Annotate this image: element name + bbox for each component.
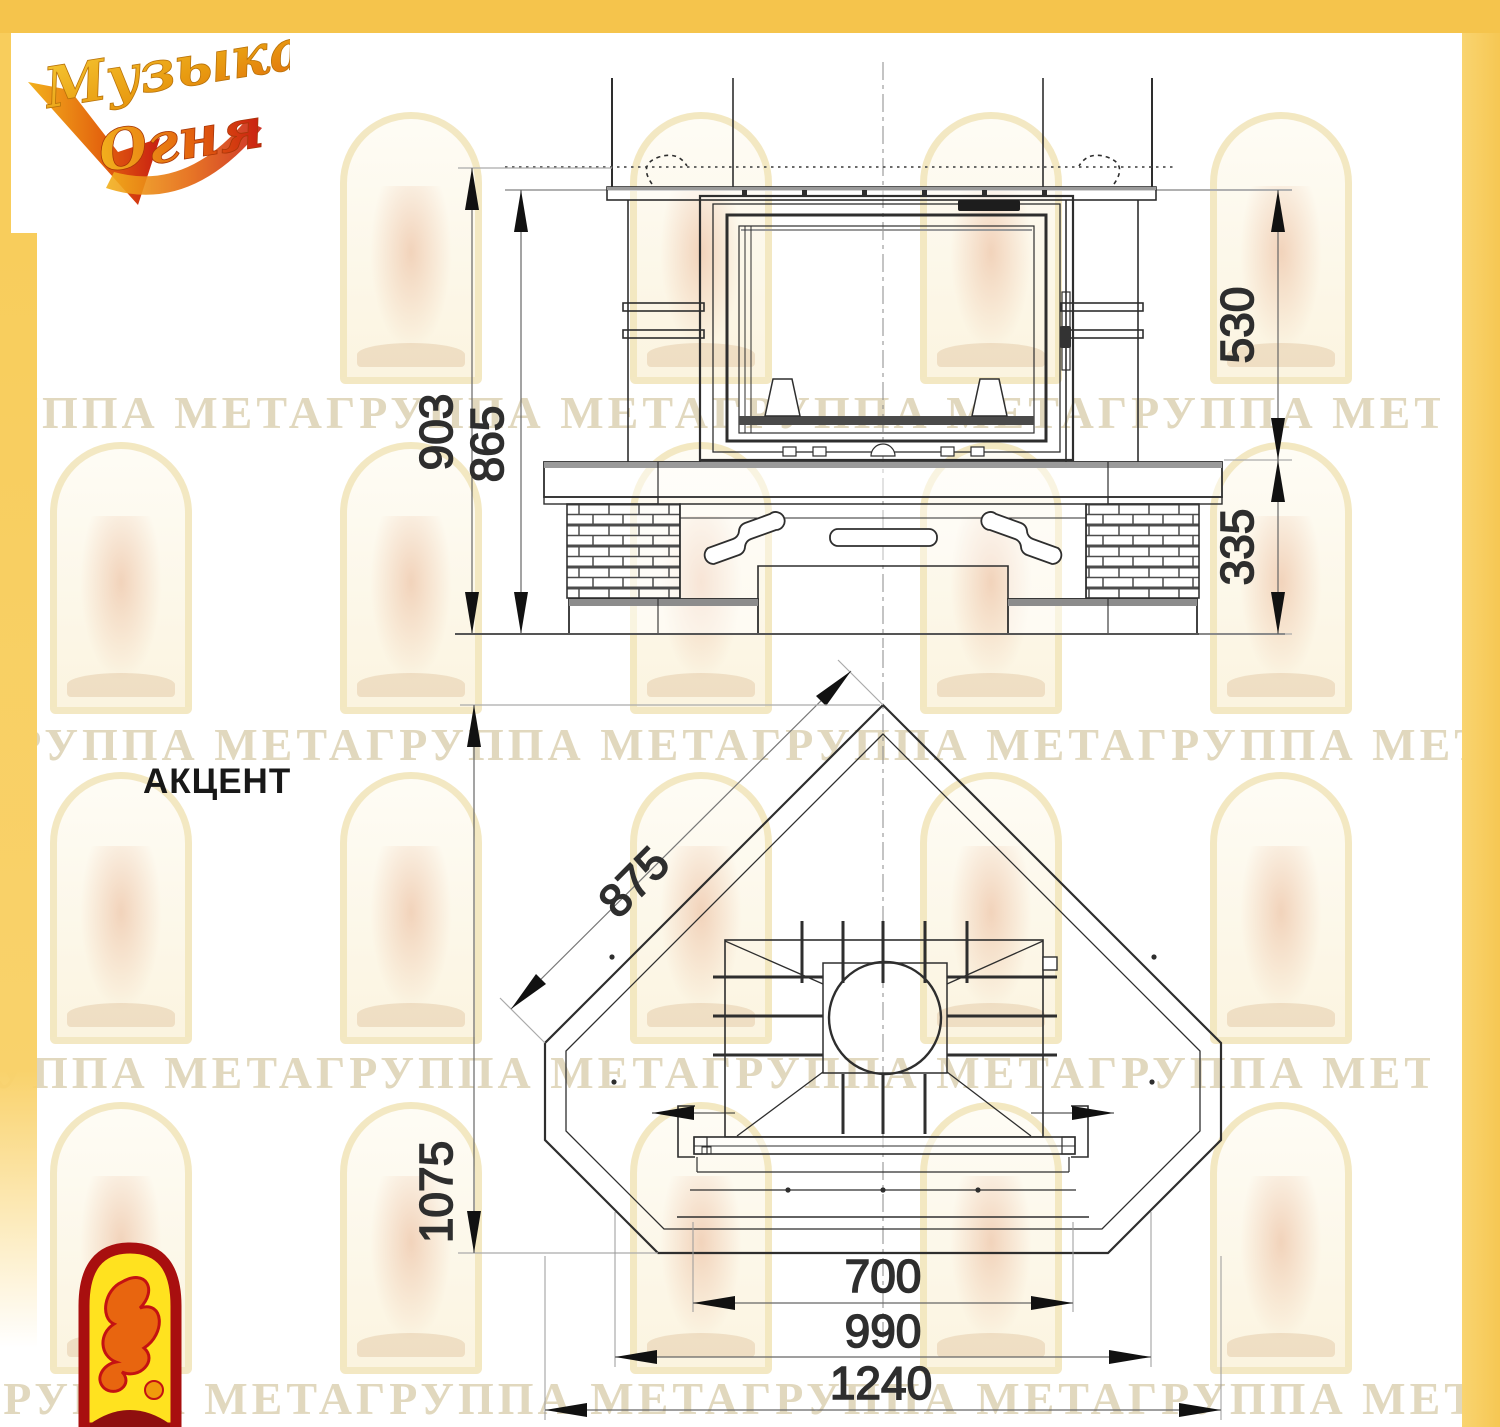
brick-pillar-right [1086, 504, 1199, 598]
damper-hook-left [646, 155, 687, 184]
dim-face-width-group: 875 [500, 660, 883, 1043]
frame-strip-left [0, 233, 37, 1348]
dim-overall-width: 1240 [830, 1357, 932, 1409]
plan-view: 875 1075 [410, 650, 1221, 1420]
side-latch [1043, 957, 1057, 970]
brick-pillar-left [567, 504, 680, 598]
dim-face-width: 875 [588, 836, 679, 927]
dim-mantel-height: 865 [461, 406, 513, 483]
fire-dancer-arch-logo [70, 1238, 190, 1427]
andiron-right [972, 379, 1007, 416]
front-elevation-view: 903 865 530 335 [410, 62, 1292, 648]
dim-base-section: 335 [1211, 509, 1263, 586]
dim-opening-width: 700 [845, 1250, 922, 1302]
frame-band-top [0, 0, 1500, 33]
insert-top-view [694, 921, 1075, 1154]
dim-depth-group: 1075 [410, 705, 880, 1253]
convection-ribs [713, 921, 1057, 1134]
frame-strip-left [0, 33, 11, 233]
hearth-slab [544, 462, 1222, 504]
door-sill [739, 416, 1034, 425]
damper-hook-right [1079, 155, 1120, 184]
insert-brand-mark [958, 200, 1020, 211]
vent-knobs [783, 444, 984, 456]
dim-depth: 1075 [410, 1141, 462, 1243]
dim-inner-width: 990 [845, 1305, 922, 1357]
dim-overall-height: 903 [410, 394, 462, 471]
frame-strip-right [1462, 33, 1500, 1427]
firebox-door [700, 196, 1073, 460]
chimney [612, 78, 1152, 187]
andiron-left [765, 379, 800, 416]
music-of-fire-logo: Музыка Огня [10, 20, 290, 220]
dim-upper-section: 530 [1211, 287, 1263, 364]
fascia-slot-center [830, 529, 937, 546]
page: ГРУППА МЕТАГРУППА МЕТАГРУППА МЕТАГРУППА … [0, 0, 1500, 1427]
model-name-label: АКЦЕНТ [143, 762, 291, 802]
